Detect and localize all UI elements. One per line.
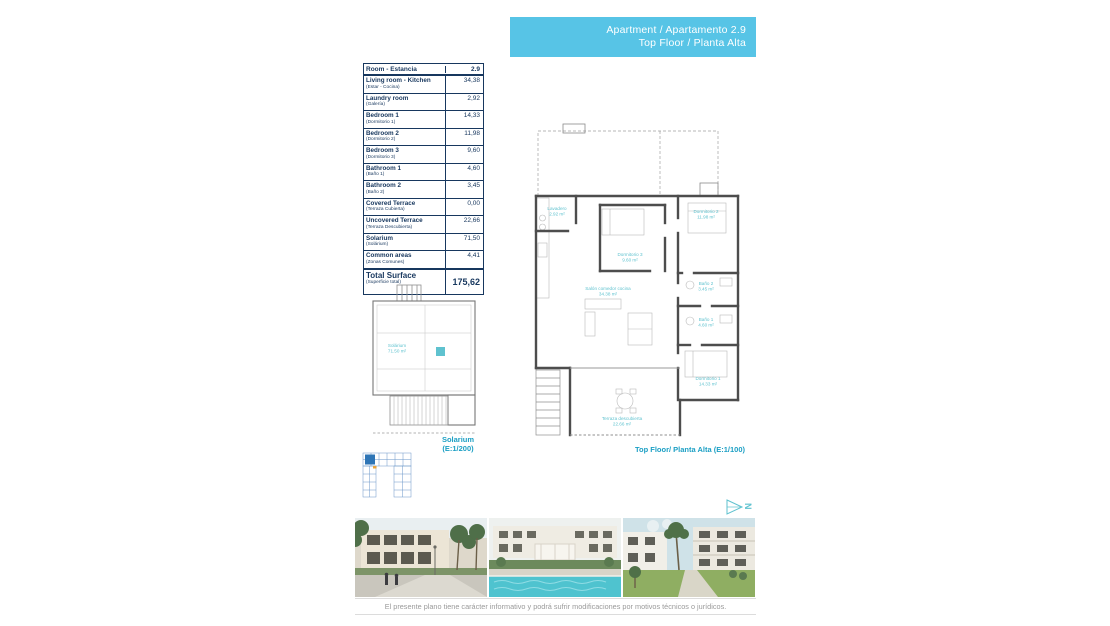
- key-plan-entry-marker: [373, 466, 377, 469]
- label-dormitorio-1: Dormitorio 1: [695, 376, 720, 381]
- room-name-es: (Terraza Cubierta): [366, 207, 443, 213]
- table-header-row: Room - Estancia 2.9: [364, 64, 483, 76]
- room-name: Common areas: [366, 252, 443, 260]
- table-row: Bedroom 3(Dormitorio 3) 9,60: [364, 146, 483, 164]
- room-name-es: (Galería): [366, 102, 443, 108]
- garden-render-art: [623, 518, 755, 597]
- table-row: Bedroom 1(Dormitorio 1) 14,33: [364, 111, 483, 129]
- room-name: Bedroom 3: [366, 147, 443, 155]
- room-name: Laundry room: [366, 95, 443, 103]
- room-name-es: (Dormitorio 2): [366, 137, 443, 143]
- room-name: Bedroom 1: [366, 112, 443, 120]
- table-header-room: Room - Estancia: [364, 66, 446, 73]
- north-arrow-icon: N: [723, 496, 757, 518]
- room-area: 2,92: [446, 94, 483, 111]
- area-dormitorio-1: 14.33 m²: [699, 382, 718, 387]
- street-render-photo: [355, 518, 487, 597]
- room-area: 14,33: [446, 111, 483, 128]
- table-row: Laundry room(Galería) 2,92: [364, 94, 483, 112]
- label-salon: Salón comedor cocina: [585, 286, 631, 291]
- total-label: Total Surface: [366, 271, 443, 280]
- area-solarium: 71.50 m²: [388, 349, 407, 354]
- solarium-plan-drawing: Solárium 71.50 m²: [363, 283, 485, 445]
- roof-dashed-outline: [538, 131, 718, 196]
- room-area: 4,41: [446, 251, 483, 268]
- table-row: Uncovered Terrace(Terraza Descubierta) 2…: [364, 216, 483, 234]
- solarium-stair: [397, 285, 421, 301]
- table-row: Common areas(Zonas Comunes) 4,41: [364, 251, 483, 269]
- room-labels: Lavadero 2.92 m² Dormitorio 2 11.98 m² D…: [547, 206, 721, 427]
- area-lavadero: 2.92 m²: [549, 212, 565, 217]
- main-plan-caption: Top Floor/ Planta Alta (E:1/100): [580, 445, 800, 454]
- label-lavadero: Lavadero: [547, 206, 567, 211]
- table-row: Solarium(Solárium) 71,50: [364, 234, 483, 252]
- area-dormitorio-3: 9.60 m²: [622, 258, 638, 263]
- garden-render-photo: [623, 518, 755, 597]
- apartment-title: Apartment / Apartamento 2.9: [606, 24, 746, 37]
- area-dormitorio-2: 11.98 m²: [697, 215, 715, 220]
- room-name: Bathroom 2: [366, 182, 443, 190]
- room-name-es: (Baño 2): [366, 190, 443, 196]
- room-area: 9,60: [446, 146, 483, 163]
- room-area: 0,00: [446, 199, 483, 216]
- top-floor-plan-drawing: Lavadero 2.92 m² Dormitorio 2 11.98 m² D…: [530, 123, 742, 443]
- room-name: Covered Terrace: [366, 200, 443, 208]
- room-name-es: (Baño 1): [366, 172, 443, 178]
- table-row: Bedroom 2(Dormitorio 2) 11,98: [364, 129, 483, 147]
- room-name: Uncovered Terrace: [366, 217, 443, 225]
- plan-sheet: Apartment / Apartamento 2.9 Top Floor / …: [0, 0, 1110, 626]
- area-terraza: 22.66 m²: [613, 422, 632, 427]
- solarium-hatched-area: [390, 396, 448, 425]
- area-bano-1: 4.60 m²: [698, 323, 714, 328]
- key-plan-highlighted-unit: [365, 455, 375, 465]
- table-row: Bathroom 1(Baño 1) 4,60: [364, 164, 483, 182]
- room-area: 71,50: [446, 234, 483, 251]
- room-area: 4,60: [446, 164, 483, 181]
- table-header-unit: 2.9: [446, 66, 483, 73]
- street-render-art: [355, 518, 487, 597]
- walls: [536, 196, 738, 435]
- room-area: 22,66: [446, 216, 483, 233]
- table-row: Bathroom 2(Baño 2) 3,45: [364, 181, 483, 199]
- room-name: Solarium: [366, 235, 443, 243]
- pool-courtyard-render-photo: [489, 518, 621, 597]
- table-row: Living room - Kitchen(Estar - Cocina) 34…: [364, 76, 483, 94]
- room-area: 34,38: [446, 76, 483, 93]
- pool-render-art: [489, 518, 621, 597]
- solarium-label: Solárium 71.50 m²: [388, 343, 407, 354]
- footer-disclaimer: El presente plano tiene carácter informa…: [355, 598, 756, 615]
- room-name-es: (Dormitorio 1): [366, 120, 443, 126]
- area-salon: 34.38 m²: [599, 292, 618, 297]
- room-name: Bedroom 2: [366, 130, 443, 138]
- solarium-plan-caption: Solarium (E:1/200): [413, 435, 503, 453]
- room-name: Bathroom 1: [366, 165, 443, 173]
- label-bano-1: Baño 1: [699, 317, 714, 322]
- label-dormitorio-3: Dormitorio 3: [617, 252, 642, 257]
- label-solarium: Solárium: [388, 343, 406, 348]
- room-area: 3,45: [446, 181, 483, 198]
- area-bano-2: 3.45 m²: [698, 287, 714, 292]
- label-dormitorio-2: Dormitorio 2: [693, 209, 718, 214]
- floor-subtitle: Top Floor / Planta Alta: [639, 37, 746, 50]
- label-terraza: Terraza descubierta: [602, 416, 643, 421]
- solarium-pool-marker: [436, 347, 445, 356]
- header-banner: Apartment / Apartamento 2.9 Top Floor / …: [510, 17, 756, 57]
- key-plan: [360, 450, 414, 500]
- room-name: Living room - Kitchen: [366, 77, 443, 85]
- north-letter: N: [743, 503, 753, 510]
- room-area: 11,98: [446, 129, 483, 146]
- table-row: Covered Terrace(Terraza Cubierta) 0,00: [364, 199, 483, 217]
- room-name-es: (Zonas Comunes): [366, 260, 443, 266]
- room-name-es: (Estar - Cocina): [366, 85, 443, 91]
- room-name-es: (Dormitorio 3): [366, 155, 443, 161]
- room-surface-table: Room - Estancia 2.9 Living room - Kitche…: [363, 63, 484, 295]
- label-bano-2: Baño 2: [699, 281, 714, 286]
- room-name-es: (Terraza Descubierta): [366, 225, 443, 231]
- solarium-outline: [373, 301, 475, 425]
- stairs: [536, 370, 560, 435]
- room-name-es: (Solárium): [366, 242, 443, 248]
